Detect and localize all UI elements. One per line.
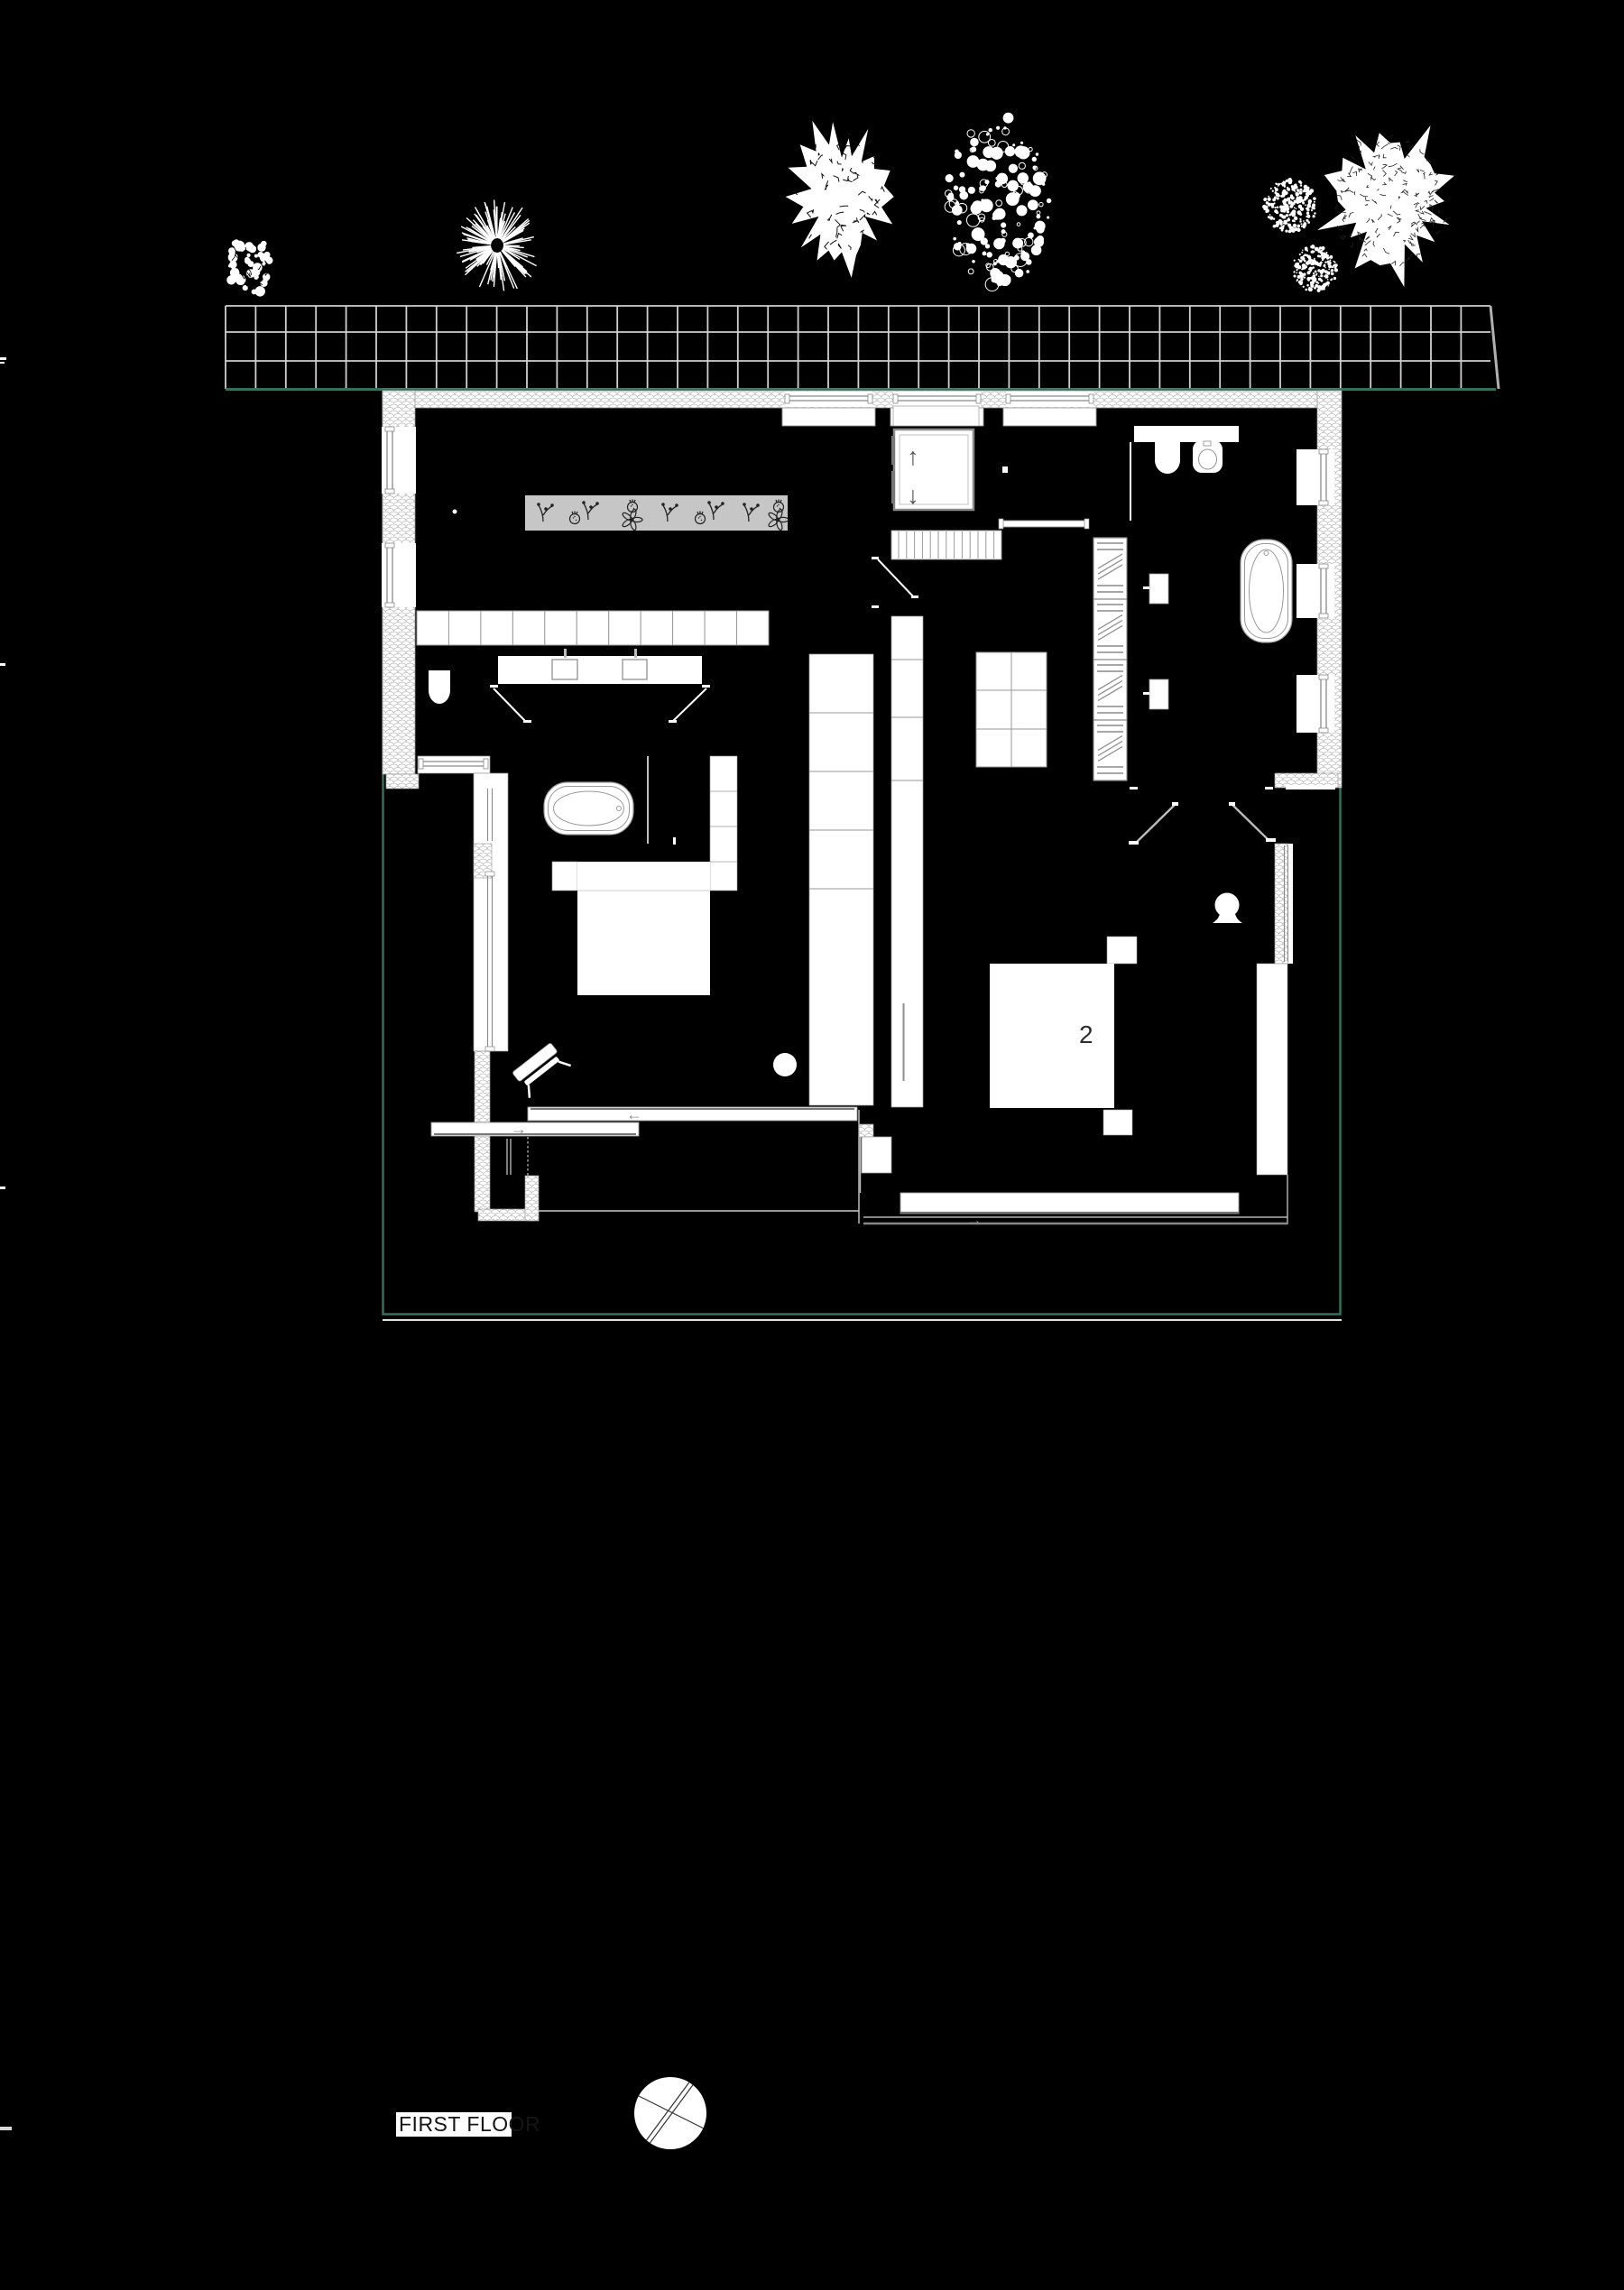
wall-tick: [1002, 466, 1008, 473]
bathtub-right: [1241, 540, 1292, 642]
nightstand: [1107, 937, 1137, 964]
floor-label: FIRST FLOOR: [399, 2112, 540, 2136]
left-corner-window: [418, 756, 490, 773]
elevator-arrow-down: ↓: [907, 482, 919, 509]
door-arrow-left: ←: [626, 1105, 642, 1123]
background: [0, 0, 1624, 2285]
floor-plan-drawing: ← → →: [0, 0, 1624, 2285]
toilet-left: [429, 670, 450, 704]
elevator: ↑ ↓: [891, 406, 979, 510]
left-wall-corner: [386, 774, 419, 789]
compass-symbol: [634, 2077, 706, 2149]
nightstand: [1103, 1110, 1132, 1135]
nightstand: [552, 862, 577, 891]
wc-sink: [1155, 442, 1180, 474]
left-wall-lower: [474, 773, 508, 1051]
bath-south-wall-edge: [1286, 785, 1335, 789]
bedroom2-sliding-door: →: [863, 1193, 1287, 1229]
nightstand: [710, 862, 737, 891]
bedroom2-east-wall: [1257, 964, 1287, 1175]
shower: [976, 652, 1047, 767]
elevator-door-rail2: [891, 471, 895, 503]
wall-stub: [673, 837, 676, 845]
right-wall-windows: [1296, 449, 1334, 733]
bathtub-left: [544, 782, 633, 835]
wardrobe-columnA: [809, 654, 873, 1105]
closet-row: [417, 611, 769, 645]
door-arrow-right2: →: [966, 1211, 983, 1229]
wardrobe-columnC: [891, 616, 923, 1107]
door-arrow-right: →: [511, 1120, 527, 1138]
wardrobe-spine: [809, 616, 923, 1107]
toilet-right: [1193, 440, 1223, 473]
wardrobe-columnB: [710, 756, 737, 862]
towel-ladder: [1093, 538, 1127, 780]
room-number-label: 2: [1079, 1020, 1093, 1048]
stair-door-leaf: [1001, 521, 1087, 527]
bed1-mattress: [577, 862, 710, 995]
bed1: [552, 862, 737, 995]
bedroom2-east-window: [1275, 844, 1293, 964]
bed2-mattress: [990, 964, 1114, 1108]
elevator-door-rail: [891, 436, 895, 465]
ceiling-light: [453, 510, 457, 514]
title-block: FIRST FLOOR: [396, 2112, 540, 2137]
elevator-arrow-up: ↑: [907, 443, 919, 470]
